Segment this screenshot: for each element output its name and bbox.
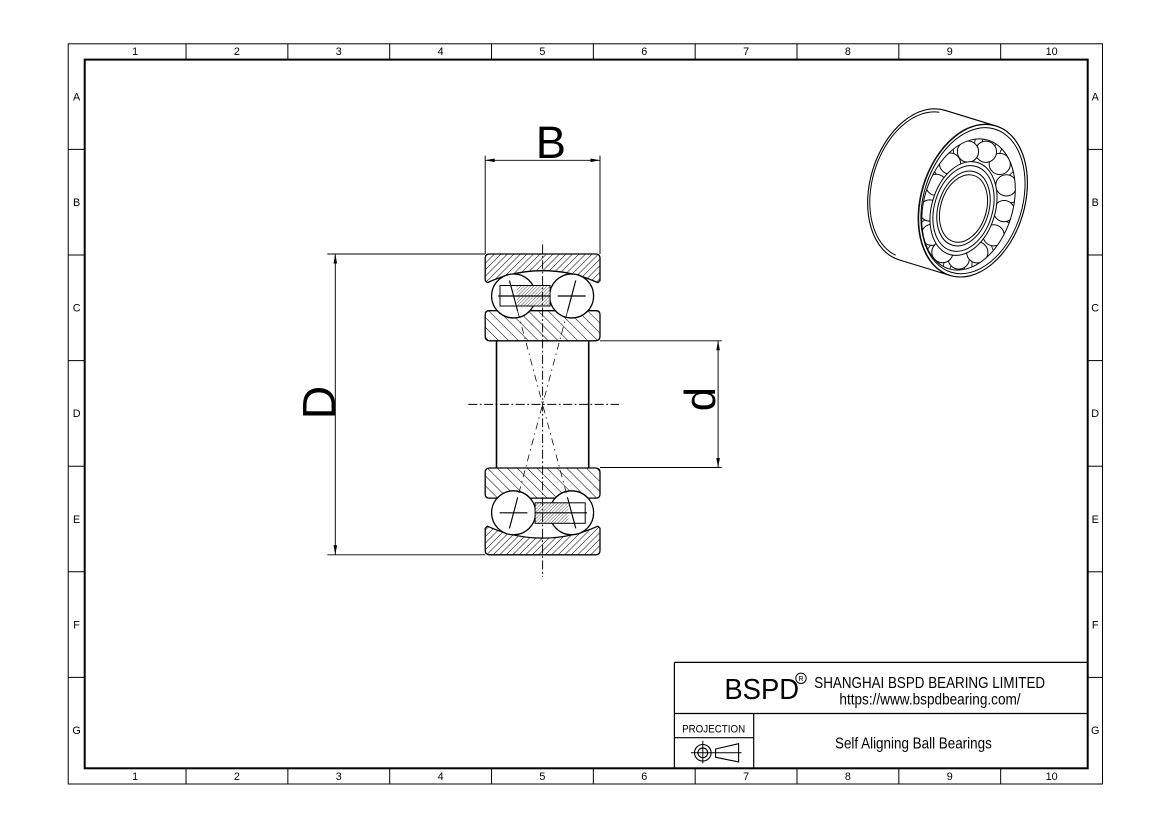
- svg-text:B: B: [536, 117, 566, 168]
- svg-text:3: 3: [336, 771, 342, 783]
- svg-text:SHANGHAI BSPD BEARING LIMITED: SHANGHAI BSPD BEARING LIMITED: [814, 674, 1045, 692]
- svg-text:9: 9: [947, 46, 953, 58]
- svg-text:E: E: [73, 514, 80, 526]
- svg-text:10: 10: [1046, 46, 1058, 58]
- svg-text:1: 1: [132, 771, 138, 783]
- svg-text:4: 4: [438, 771, 444, 783]
- svg-text:7: 7: [743, 46, 749, 58]
- svg-text:E: E: [1092, 514, 1099, 526]
- svg-text:B: B: [1092, 197, 1099, 209]
- svg-text:PROJECTION: PROJECTION: [682, 724, 745, 736]
- svg-text:6: 6: [641, 46, 647, 58]
- svg-text:B: B: [73, 197, 80, 209]
- svg-text:1: 1: [132, 46, 138, 58]
- svg-text:A: A: [1092, 91, 1100, 103]
- svg-text:Self Aligning Ball Bearings: Self Aligning Ball Bearings: [835, 736, 992, 753]
- svg-text:D: D: [73, 408, 81, 420]
- svg-text:10: 10: [1046, 771, 1058, 783]
- svg-text:8: 8: [845, 46, 851, 58]
- svg-text:d: d: [677, 387, 725, 411]
- svg-text:5: 5: [539, 46, 545, 58]
- svg-text:8: 8: [845, 771, 851, 783]
- svg-text:D: D: [293, 386, 345, 420]
- svg-text:2: 2: [234, 46, 240, 58]
- svg-text:F: F: [73, 619, 80, 631]
- svg-text:9: 9: [947, 771, 953, 783]
- svg-text:https://www.bspdbearing.com/: https://www.bspdbearing.com/: [839, 692, 1021, 709]
- svg-text:G: G: [1091, 725, 1099, 737]
- svg-text:D: D: [1091, 408, 1099, 420]
- svg-text:2: 2: [234, 771, 240, 783]
- svg-text:C: C: [1091, 303, 1099, 315]
- svg-text:G: G: [72, 725, 80, 737]
- svg-text:C: C: [73, 303, 81, 315]
- svg-text:BSPD: BSPD: [724, 672, 799, 705]
- svg-text:4: 4: [438, 46, 444, 58]
- svg-text:3: 3: [336, 46, 342, 58]
- svg-text:6: 6: [641, 771, 647, 783]
- svg-text:R: R: [798, 676, 803, 683]
- svg-text:5: 5: [539, 771, 545, 783]
- svg-text:A: A: [73, 91, 81, 103]
- svg-text:F: F: [1092, 619, 1099, 631]
- svg-text:7: 7: [743, 771, 749, 783]
